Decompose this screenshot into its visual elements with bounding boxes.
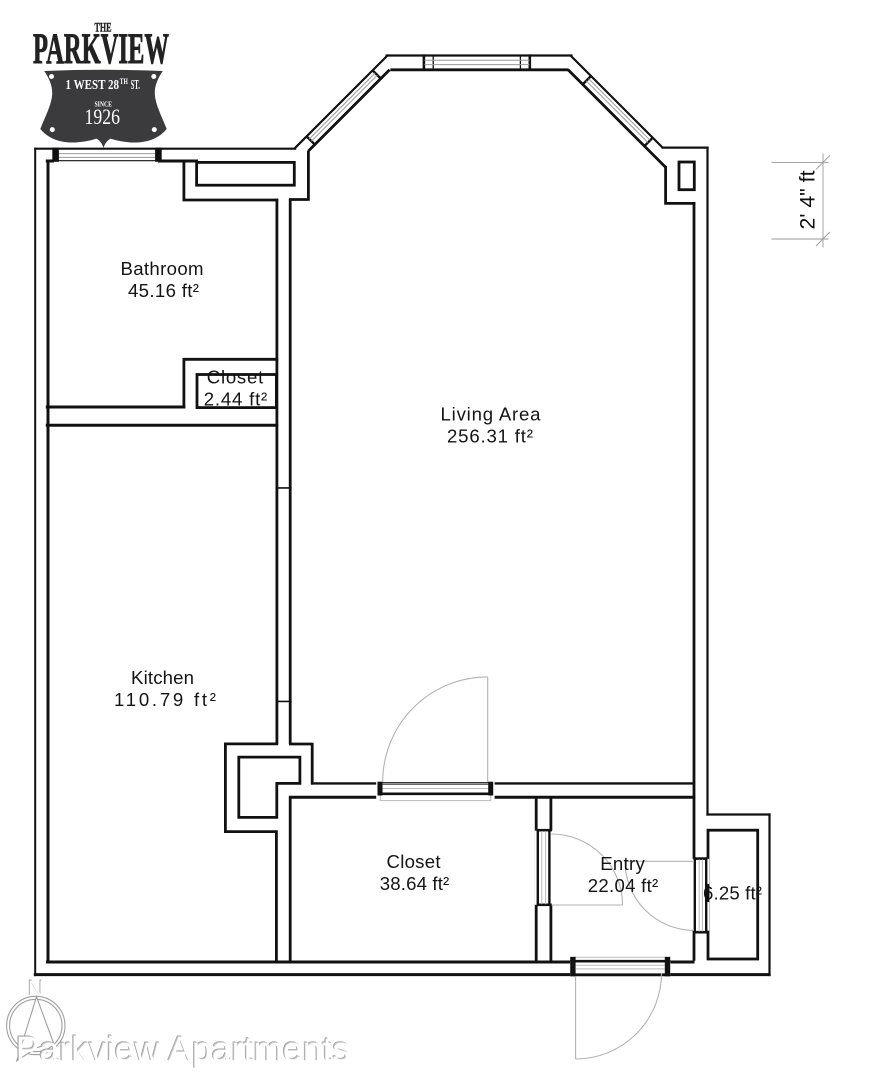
- svg-text:1 WEST 28: 1 WEST 28: [66, 77, 120, 92]
- svg-text:22.04 ft²: 22.04 ft²: [588, 875, 659, 896]
- svg-text:256.31 ft²: 256.31 ft²: [447, 425, 533, 446]
- svg-text:Parkview Apartments: Parkview Apartments: [16, 1031, 350, 1070]
- svg-text:2.44 ft²: 2.44 ft²: [204, 388, 268, 409]
- svg-text:PARKVIEW: PARKVIEW: [33, 26, 169, 73]
- svg-text:38.64 ft²: 38.64 ft²: [380, 873, 450, 894]
- svg-text:45.16 ft²: 45.16 ft²: [128, 280, 199, 301]
- svg-text:Bathroom: Bathroom: [121, 258, 204, 279]
- svg-text:Living Area: Living Area: [441, 403, 542, 424]
- svg-text:6.25 ft²: 6.25 ft²: [703, 882, 762, 903]
- svg-text:ST.: ST.: [131, 77, 140, 92]
- svg-text:2' 4" ft: 2' 4" ft: [796, 170, 820, 229]
- svg-text:TH: TH: [120, 77, 129, 86]
- svg-text:Kitchen: Kitchen: [131, 667, 194, 688]
- svg-text:Entry: Entry: [600, 853, 645, 874]
- svg-text:Closet: Closet: [387, 851, 442, 872]
- svg-text:N: N: [28, 976, 44, 1001]
- svg-text:1926: 1926: [84, 104, 120, 129]
- svg-text:110.79 ft²: 110.79 ft²: [114, 689, 216, 710]
- svg-text:Closet: Closet: [207, 366, 264, 387]
